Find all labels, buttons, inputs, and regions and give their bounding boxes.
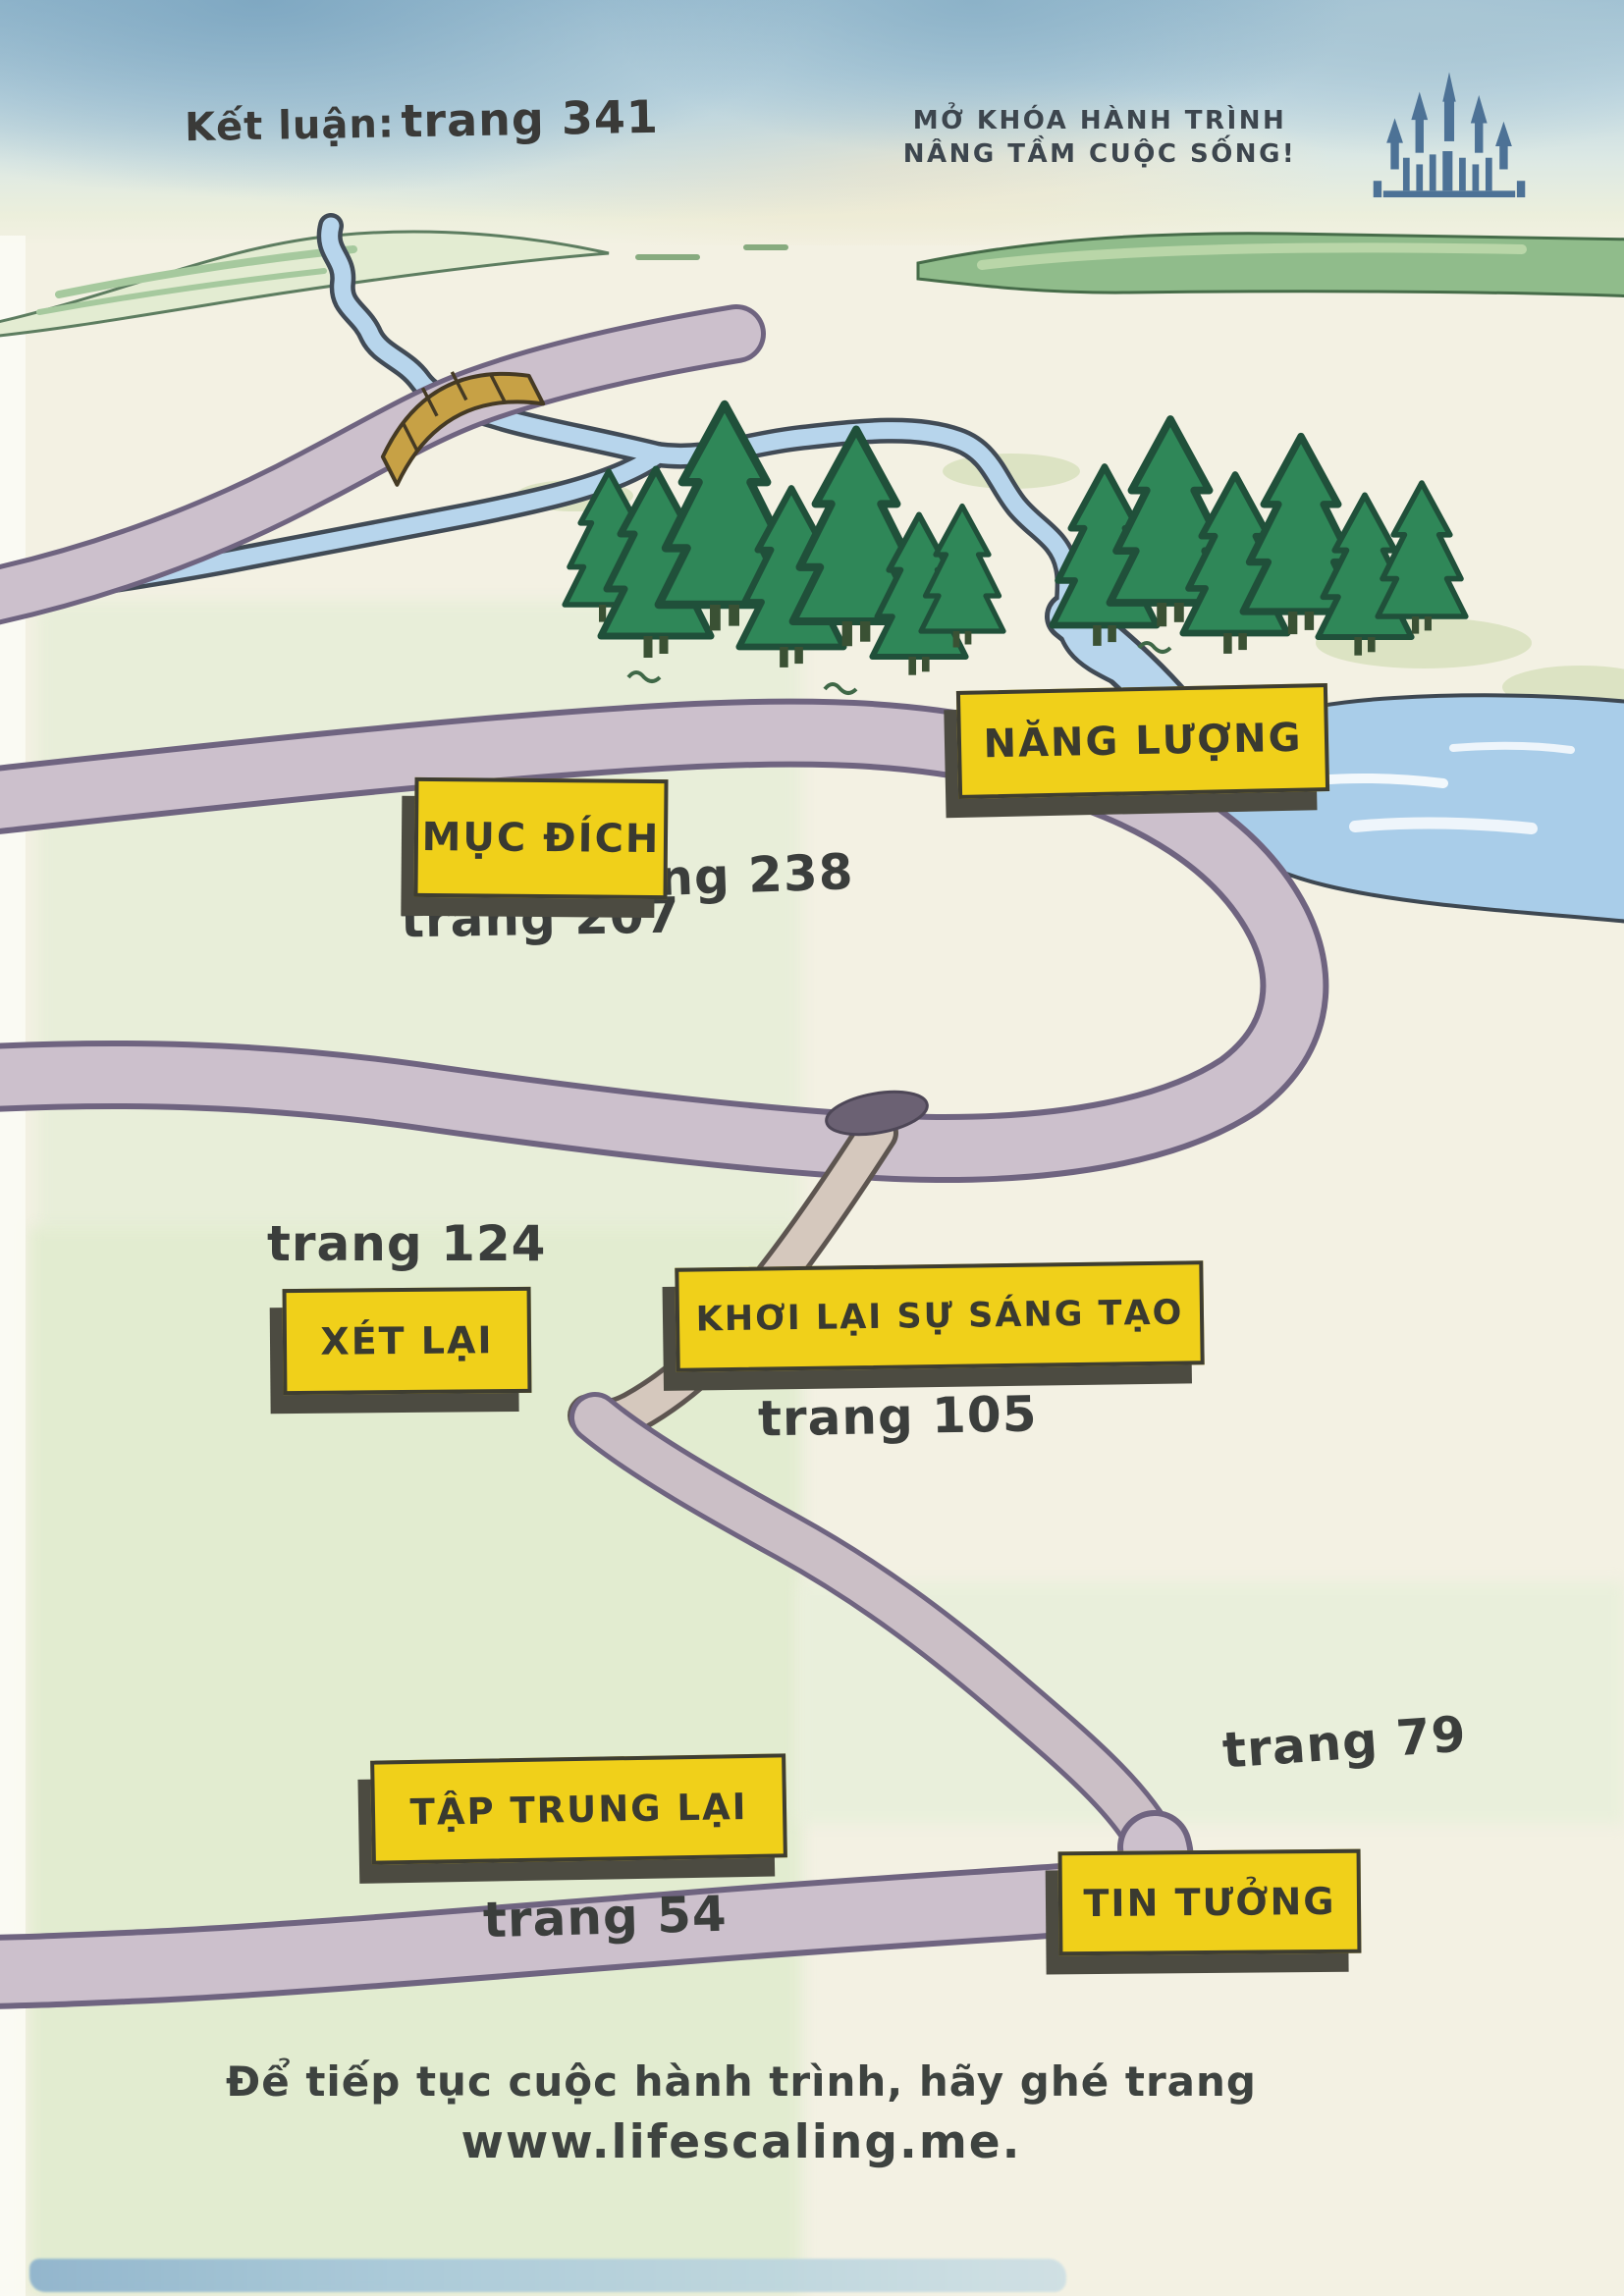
conclusion-prefix: Kết luận: xyxy=(185,101,396,150)
sign-label: TẬP TRUNG LẠI xyxy=(409,1786,748,1834)
tagline-line2: NÂNG TẦM CUỘC SỐNG! xyxy=(889,137,1311,171)
footer-text: Để tiếp tục cuộc hành trình, hãy ghé tra… xyxy=(196,2057,1286,2169)
sign-label: KHƠI LẠI SỰ SÁNG TẠO xyxy=(695,1294,1183,1340)
map-illustration xyxy=(0,0,1624,2296)
page-label-54: trang 54 xyxy=(482,1886,728,1949)
sign-label: NĂNG LƯỢNG xyxy=(983,716,1303,768)
sign-muc-dich: MỤC ĐÍCH xyxy=(413,777,668,899)
conclusion-text: Kết luận: trang 341 xyxy=(185,90,660,151)
tagline-line1: MỞ KHÓA HÀNH TRÌNH xyxy=(889,104,1311,137)
castle-icon xyxy=(1367,69,1532,234)
conclusion-page-number: trang 341 xyxy=(401,90,659,148)
page-label-124: trang 124 xyxy=(267,1215,546,1272)
tagline: MỞ KHÓA HÀNH TRÌNH NÂNG TẦM CUỘC SỐNG! xyxy=(889,104,1311,172)
sign-xet-lai: XÉT LẠI xyxy=(283,1287,532,1395)
sign-khoi-lai-su-sang-tao: KHƠI LẠI SỰ SÁNG TẠO xyxy=(675,1260,1204,1372)
footer-line1: Để tiếp tục cuộc hành trình, hãy ghé tra… xyxy=(196,2057,1286,2106)
sign-label: MỤC ĐÍCH xyxy=(421,815,660,862)
pine-forest-right xyxy=(1053,419,1466,656)
sign-nang-luong: NĂNG LƯỢNG xyxy=(956,683,1329,799)
sign-label: XÉT LẠI xyxy=(320,1318,494,1363)
castle-icon-drawing xyxy=(1367,69,1532,234)
journey-map-page: Kết luận: trang 341 MỞ KHÓA HÀNH TRÌNH N… xyxy=(0,0,1624,2296)
sign-label: TIN TƯỞNG xyxy=(1083,1880,1335,1925)
footer-url: www.lifescaling.me. xyxy=(196,2115,1286,2169)
sign-tin-tuong: TIN TƯỞNG xyxy=(1058,1849,1362,1956)
page-label-105: trang 105 xyxy=(758,1386,1038,1448)
sign-tap-trung-lai: TẬP TRUNG LẠI xyxy=(370,1753,787,1864)
bottom-watercolor-strip xyxy=(29,2259,1066,2292)
